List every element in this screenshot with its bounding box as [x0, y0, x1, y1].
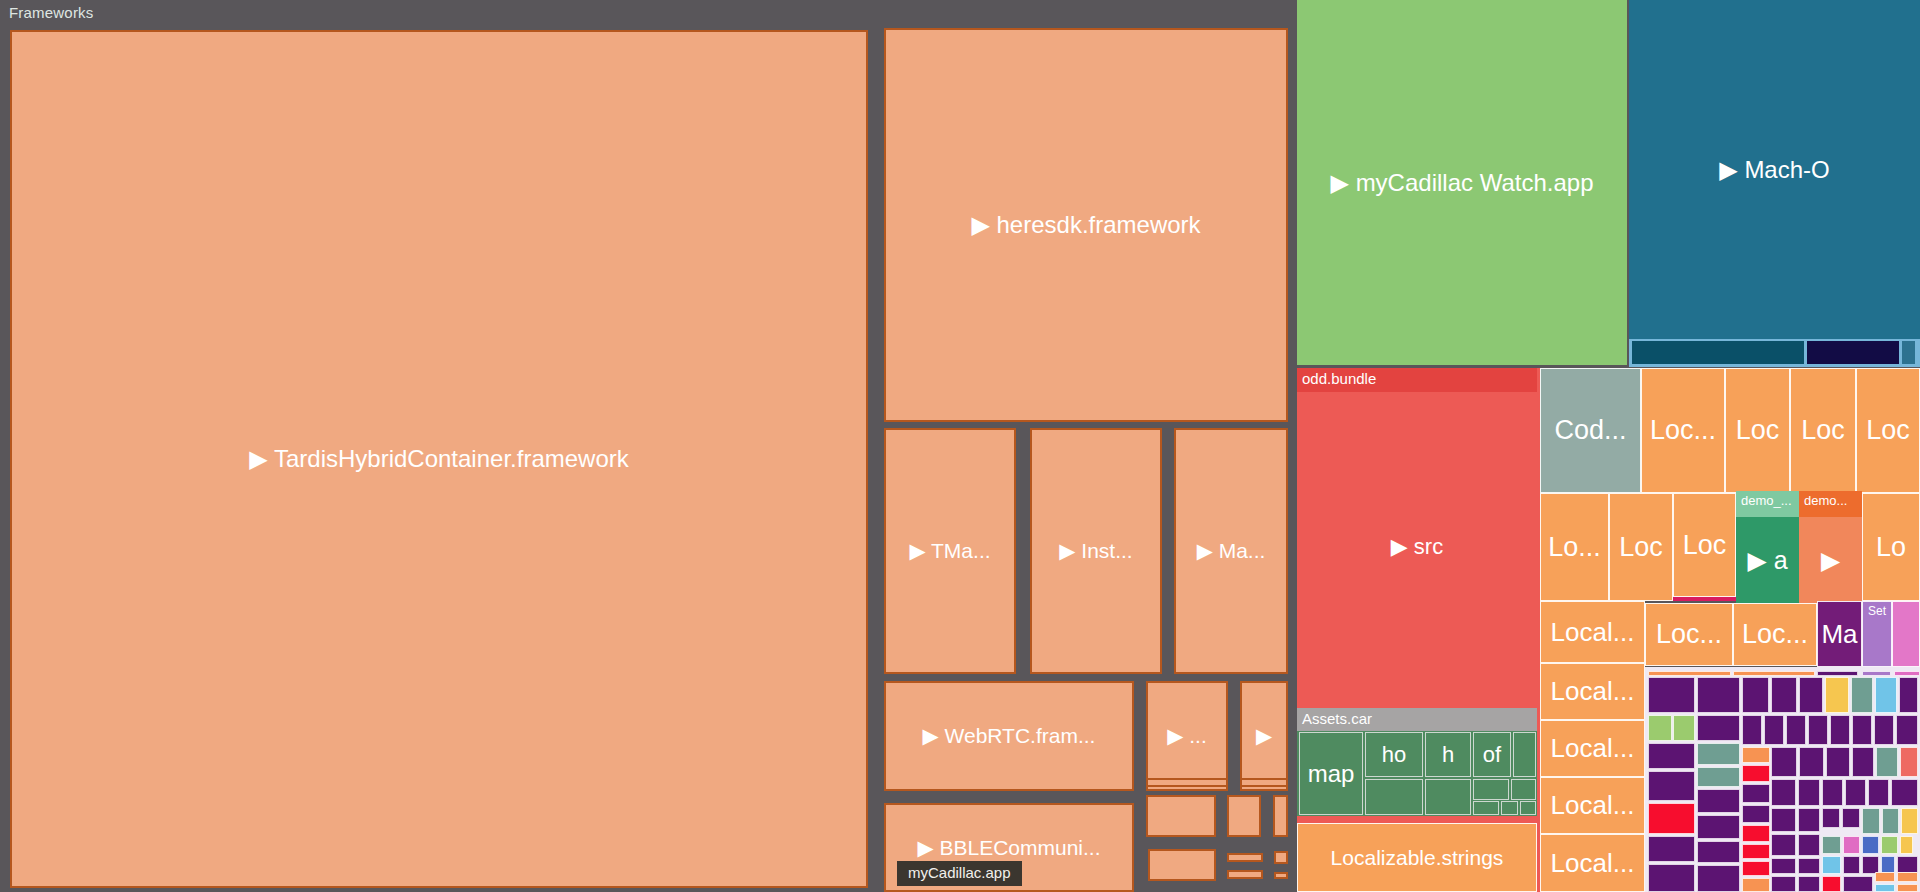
mosaic-cell[interactable] [1798, 779, 1820, 806]
treemap-cell[interactable] [1473, 779, 1509, 800]
treemap-cell[interactable] [1473, 801, 1499, 815]
cell-label: Loc [1610, 494, 1672, 600]
mosaic-cell[interactable] [1862, 808, 1880, 834]
mosaic-cell[interactable] [1742, 861, 1770, 876]
treemap-cell[interactable] [1227, 795, 1261, 837]
cell-loc[interactable]: Loc... [1645, 603, 1733, 666]
cell-label: ▶ src [1297, 392, 1537, 702]
mosaic-cell[interactable] [1798, 808, 1820, 832]
cell-heresdk-framework[interactable]: ▶ heresdk.framework [884, 28, 1288, 422]
cell-loc[interactable]: Lo... [1540, 493, 1609, 601]
cell-header: demo... [1799, 491, 1862, 517]
mosaic-cell[interactable] [1891, 779, 1918, 806]
mosaic-cell[interactable] [1822, 808, 1840, 828]
mosaic-cell[interactable] [1799, 747, 1824, 777]
mosaic-cell[interactable] [1897, 872, 1918, 882]
treemap-cell[interactable] [1148, 849, 1216, 881]
cell-assets-h[interactable]: h [1425, 732, 1471, 777]
treemap-cell[interactable] [1365, 779, 1423, 815]
mosaic-cell[interactable] [1817, 671, 1858, 676]
mosaic-cell[interactable] [1852, 715, 1872, 745]
cell-header: demo_... [1736, 491, 1799, 517]
mosaic-cell[interactable] [1901, 808, 1918, 834]
cell-demo-b[interactable]: demo...▶ [1799, 491, 1862, 603]
mosaic-cell[interactable] [1648, 836, 1695, 862]
treemap-cell[interactable] [1240, 778, 1288, 787]
mosaic-cell[interactable] [1648, 803, 1695, 834]
mosaic-cell[interactable] [1822, 876, 1841, 892]
mosaic-cell[interactable] [1900, 836, 1913, 854]
cell-label: Lo... [1541, 494, 1608, 600]
mosaic-cell[interactable] [1845, 779, 1866, 806]
mosaic-cell[interactable] [1697, 865, 1740, 892]
treemap-cell[interactable] [1146, 778, 1228, 787]
mosaic-cell[interactable] [1697, 841, 1740, 863]
mosaic-cell[interactable] [1900, 747, 1918, 777]
mosaic-cell[interactable] [1764, 715, 1784, 745]
mosaic-cell[interactable] [1881, 836, 1898, 854]
mosaic-cell[interactable] [1876, 747, 1898, 777]
mosaic-cell[interactable] [1825, 677, 1849, 713]
cell-label: Local... [1541, 664, 1644, 719]
cell-tma-framework[interactable]: ▶ TMa... [884, 428, 1016, 674]
mosaic-cell[interactable] [1697, 743, 1740, 765]
mosaic-cell[interactable] [1648, 671, 1731, 676]
mosaic-cell[interactable] [1862, 836, 1879, 854]
cell-mycadillac-watch-app[interactable]: ▶ myCadillac Watch.app [1297, 0, 1627, 365]
cell-framework-ellipsis[interactable]: ▶ ... [1146, 681, 1228, 791]
mosaic-cell[interactable] [1843, 876, 1873, 892]
cell-header: odd.bundle [1297, 368, 1537, 392]
mosaic-cell[interactable] [1786, 715, 1806, 745]
cell-label: ▶ ... [1148, 683, 1226, 789]
mosaic-cell[interactable] [1798, 858, 1820, 874]
mosaic-cell[interactable] [1648, 771, 1695, 801]
cell-local[interactable]: Local... [1540, 834, 1645, 892]
treemap-cell[interactable] [1273, 795, 1288, 837]
mosaic-cell[interactable] [1648, 677, 1695, 713]
cell-assets-of[interactable]: of [1473, 732, 1511, 777]
treemap-canvas: Frameworks ▶ TardisHybridContainer.frame… [0, 0, 1920, 892]
mosaic-cell[interactable] [1648, 864, 1695, 892]
cell-loc[interactable]: Loc [1725, 368, 1790, 493]
mosaic-cell[interactable] [1771, 858, 1796, 874]
mosaic-cell[interactable] [1868, 779, 1889, 806]
cell-label: Loc... [1642, 369, 1724, 492]
tooltip-mycadillac-app: myCadillac.app [897, 861, 1022, 886]
treemap-cell[interactable] [1513, 732, 1536, 777]
cell-mach-o-sub[interactable] [1632, 341, 1804, 364]
mosaic-cell[interactable] [1896, 715, 1918, 745]
mosaic-cell[interactable] [1843, 836, 1860, 854]
cell-header: Set [1863, 602, 1891, 620]
mosaic-cell[interactable] [1673, 715, 1695, 741]
mosaic-cell[interactable] [1742, 784, 1770, 803]
mosaic-cell[interactable] [1798, 834, 1820, 856]
mosaic-cell[interactable] [1771, 876, 1796, 892]
cell-label: Loc... [1646, 604, 1732, 665]
mosaic-cell[interactable] [1742, 825, 1770, 842]
mosaic-cell[interactable] [1648, 715, 1672, 741]
mosaic-cell[interactable] [1894, 671, 1920, 676]
cell-label: Loc [1791, 369, 1855, 492]
mosaic-cell[interactable] [1882, 808, 1899, 834]
cell-local[interactable]: Local... [1540, 720, 1645, 777]
cell-label: ▶ WebRTC.fram... [886, 683, 1132, 789]
mosaic-cell[interactable] [1771, 779, 1796, 806]
treemap-cell[interactable] [1227, 870, 1263, 879]
treemap-cell[interactable] [1520, 801, 1536, 815]
frameworks-section-title: Frameworks [9, 4, 94, 21]
cell-label: Local... [1541, 835, 1644, 891]
mosaic-cell[interactable] [1851, 677, 1873, 713]
cell-label: Localizable.strings [1298, 824, 1536, 891]
cell-label: ▶ TardisHybridContainer.framework [12, 32, 866, 886]
cell-label: Loc [1726, 369, 1789, 492]
mosaic-cell[interactable] [1842, 808, 1860, 828]
cell-label: of [1474, 733, 1510, 776]
cell-label: Lo [1863, 494, 1919, 600]
cell-label: ▶ [1242, 683, 1286, 789]
cell-header: Assets.car [1297, 708, 1537, 731]
treemap-cell[interactable] [1425, 779, 1471, 815]
cell-localizable-strings[interactable]: Localizable.strings [1297, 823, 1537, 892]
mosaic-cell[interactable] [1742, 747, 1770, 763]
cell-label: ▶ myCadillac Watch.app [1297, 0, 1627, 365]
mosaic-cell[interactable] [1874, 715, 1894, 745]
mosaic-cell[interactable] [1771, 808, 1796, 832]
treemap-cell[interactable] [1274, 851, 1288, 864]
mosaic-cell[interactable] [1875, 884, 1895, 892]
cell-framework-small[interactable]: ▶ [1240, 681, 1288, 791]
mosaic-cell[interactable] [1808, 715, 1828, 745]
cell-pink[interactable] [1892, 601, 1920, 667]
cell-label: ▶ Inst... [1032, 430, 1160, 672]
mosaic-cell[interactable] [1648, 743, 1695, 769]
cell-loc[interactable]: Loc [1790, 368, 1856, 493]
cell-inst-framework[interactable]: ▶ Inst... [1030, 428, 1162, 674]
cell-label: ▶ heresdk.framework [886, 30, 1286, 420]
cell-label: ▶ Ma... [1176, 430, 1286, 672]
cell-label: ▶ a [1736, 517, 1799, 603]
mosaic-cell[interactable] [1771, 677, 1797, 713]
mosaic-cell[interactable] [1742, 844, 1770, 859]
cell-label: ho [1366, 733, 1422, 776]
mosaic-cell[interactable] [1733, 671, 1815, 676]
mosaic-cell[interactable] [1822, 779, 1843, 806]
mosaic-cell[interactable] [1742, 765, 1770, 782]
cell-webrtc-framework[interactable]: ▶ WebRTC.fram... [884, 681, 1134, 791]
mosaic-cell[interactable] [1852, 747, 1874, 777]
cell-label: Loc [1857, 369, 1919, 492]
cell-local[interactable]: Local... [1540, 663, 1645, 720]
cell-ma-framework[interactable]: ▶ Ma... [1174, 428, 1288, 674]
mosaic-cell[interactable] [1822, 856, 1841, 874]
treemap-cell[interactable] [1227, 853, 1263, 862]
mosaic-cell[interactable] [1697, 789, 1740, 813]
cell-label: map [1300, 733, 1362, 814]
treemap-cell[interactable] [1511, 779, 1536, 800]
cell-loc[interactable]: Loc... [1733, 603, 1817, 666]
mosaic-cell[interactable] [1697, 715, 1740, 741]
cell-mach-o-sub[interactable] [1902, 341, 1915, 364]
cell-crimson-bar[interactable] [1673, 597, 1736, 601]
cell-assets-ho[interactable]: ho [1365, 732, 1423, 777]
cell-label: Local... [1541, 778, 1644, 833]
cell-label: Cod... [1541, 369, 1640, 492]
cell-loc[interactable]: Loc [1609, 493, 1673, 601]
mosaic-cell[interactable] [1875, 872, 1895, 882]
mosaic-cell[interactable] [1826, 747, 1850, 777]
cell-odd-bundle[interactable]: odd.bundle▶ src [1297, 368, 1537, 702]
cell-ma-purple[interactable]: Ma [1817, 601, 1862, 667]
cell-cod[interactable]: Cod... [1540, 368, 1641, 493]
treemap-cell[interactable] [1146, 795, 1216, 837]
cell-label: ▶ [1799, 517, 1862, 603]
cell-loc[interactable]: Loc... [1641, 368, 1725, 493]
mosaic-cell[interactable] [1697, 767, 1740, 787]
treemap-cell[interactable] [1274, 872, 1288, 879]
cell-label: Loc [1674, 494, 1735, 596]
cell-local[interactable]: Local... [1540, 777, 1645, 834]
cell-mach-o[interactable]: ▶ Mach-O [1629, 0, 1920, 339]
mosaic-cell[interactable] [1843, 856, 1860, 874]
mosaic-cell[interactable] [1798, 876, 1820, 892]
cell-label: Ma [1818, 602, 1861, 666]
mosaic-cell[interactable] [1897, 884, 1918, 892]
mosaic-cell[interactable] [1771, 834, 1796, 856]
mosaic-cell[interactable] [1742, 878, 1770, 892]
treemap-cell[interactable] [1501, 801, 1518, 815]
cell-assets-map[interactable]: map [1299, 732, 1363, 815]
cell-set[interactable]: Set [1862, 601, 1892, 667]
mosaic-cell[interactable] [1822, 836, 1841, 854]
cell-label: Loc... [1734, 604, 1816, 665]
mosaic-cell[interactable] [1742, 805, 1770, 823]
mosaic-cell[interactable] [1697, 815, 1740, 839]
mosaic-cell[interactable] [1771, 747, 1797, 777]
mosaic-cell[interactable] [1742, 677, 1769, 713]
cell-label: ▶ Mach-O [1629, 0, 1920, 339]
cell-loc[interactable]: Loc [1856, 368, 1920, 493]
cell-label: Local... [1541, 721, 1644, 776]
cell-mach-o-sub[interactable] [1807, 341, 1899, 364]
cell-label: Local... [1541, 602, 1644, 662]
cell-loc[interactable]: Lo [1862, 493, 1920, 601]
cell-demo-a[interactable]: demo_...▶ a [1736, 491, 1799, 603]
cell-local[interactable]: Local... [1540, 601, 1645, 663]
cell-label: h [1426, 733, 1470, 776]
mosaic-cell[interactable] [1899, 677, 1918, 713]
mosaic-cell[interactable] [1875, 677, 1897, 713]
mosaic-cell[interactable] [1799, 677, 1823, 713]
cell-label: ▶ TMa... [886, 430, 1014, 672]
mosaic-cell[interactable] [1697, 677, 1740, 713]
cell-loc[interactable]: Loc [1673, 493, 1736, 597]
mosaic-cell[interactable] [1742, 715, 1762, 745]
mosaic-cell[interactable] [1830, 715, 1850, 745]
mosaic-cell[interactable] [1862, 671, 1891, 676]
cell-tardishybridcontainer-framework[interactable]: ▶ TardisHybridContainer.framework [10, 30, 868, 888]
